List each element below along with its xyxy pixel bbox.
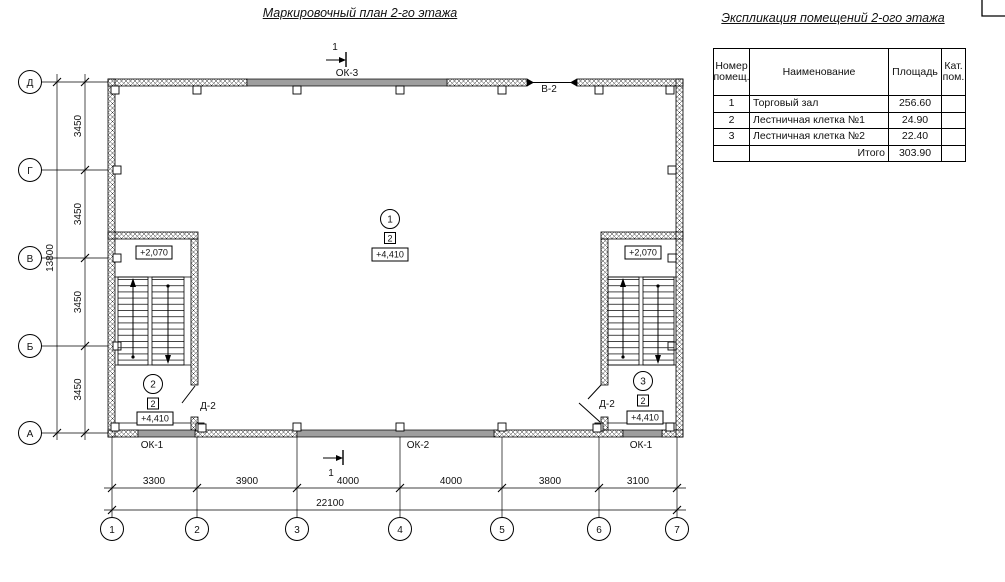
dim-label: 3450 [73,202,84,225]
room-type: 2 [640,396,645,406]
cell-total-empty [714,146,750,162]
cell-room-area: 24.90 [889,113,942,130]
axis-bubble: 2 [194,525,200,536]
room-number: 3 [640,377,646,388]
axis-bubble: В [27,254,34,265]
axis-bubble: А [27,429,34,440]
wall-top-seg3 [577,79,683,86]
axis-bubble: 5 [499,525,505,536]
axis-bubble: Б [27,342,34,353]
stairwell-right-top-wall [601,232,683,239]
elevation-value: +4,410 [141,414,169,424]
cell-room-name: Лестничная клетка №2 [750,129,889,146]
axis-bubble: Г [27,166,33,177]
room-type: 2 [150,399,155,409]
cell-total-area: 303.90 [889,146,942,162]
cell-room-name: Торговый зал [750,96,889,113]
dim-label: 3450 [73,290,84,313]
cell-room-cat [942,113,965,130]
label-v2: В-2 [541,84,557,95]
cell-room-number: 3 [714,129,750,146]
elevation-value: +2,070 [629,248,657,258]
door-leaves [182,385,601,422]
dim-total-label: 22100 [316,498,344,509]
cell-room-number: 2 [714,113,750,130]
section-number: 1 [332,42,338,53]
elevation-value: +4,410 [376,250,404,260]
axis-circles-left: Д Г В Б А [19,71,42,445]
door-leaf-right-lower [579,403,600,422]
label-ok3: ОК-3 [336,68,359,79]
window-ok1-right [623,430,662,437]
axis-bubble: Д [27,78,34,89]
door-jamb-right [593,424,601,432]
dim-label: 3450 [73,378,84,401]
room-number: 1 [387,215,393,226]
window-ok1-left [138,430,195,437]
label-d2-left: Д-2 [200,401,216,412]
wall-top-seg2 [447,79,527,86]
col-header-area: Площадь [889,49,942,96]
axis-bubble: 6 [596,525,602,536]
room-type: 2 [387,234,392,244]
dim-label: 3100 [627,476,650,487]
gate-marker-left [527,79,534,87]
cell-room-area: 22.40 [889,129,942,146]
door-leaf-right-upper [588,385,601,399]
dim-label: 3300 [143,476,166,487]
window-ok2 [297,430,494,437]
window-ok3 [247,79,447,86]
door-leaf-left [182,386,195,403]
cell-room-name: Лестничная клетка №1 [750,113,889,130]
drawing-sheet: ОК-3 В-2 ОК-1 ОК-2 ОК-1 Д-2 Д-2 1 1 1 [0,0,1005,582]
wall-bottom-seg3 [494,430,623,437]
plan-title: Маркировочный план 2-го этажа [215,6,505,20]
dim-label: 3450 [73,114,84,137]
cell-total-label: Итого [750,146,889,162]
label-d2-right: Д-2 [599,399,615,410]
dimension-ticks [108,484,681,514]
dimension-labels-left: 3450 3450 3450 3450 13800 [45,114,84,400]
wall-top-seg1 [108,79,247,86]
dim-label: 3800 [539,476,562,487]
cell-room-cat [942,96,965,113]
section-mark-top: 1 [326,42,346,67]
frame-corner [982,0,1005,16]
col-header-name: Наименование [750,49,889,96]
room-number: 2 [150,380,156,391]
axis-bubble: 4 [397,525,403,536]
wall-bottom-seg2 [195,430,297,437]
axis-circles-bottom: 1 2 3 4 5 6 7 [101,518,689,541]
explication-title: Экспликация помещений 2-ого этажа [700,11,966,25]
axis-bubble: 3 [294,525,300,536]
section-arrow [336,455,343,461]
gate-marker-right [570,79,577,87]
cell-room-number: 1 [714,96,750,113]
dim-label: 3900 [236,476,259,487]
dimensions-bottom [104,437,686,517]
dimension-labels-bottom: 3300 3900 4000 4000 3800 3100 22100 [143,476,650,509]
section-mark-bottom: 1 [323,450,343,479]
stairwell-right-inner-wall [601,239,608,385]
room-marks: 1 2 +4,410 +2,070 2 2 +4,410 +2,070 3 2 … [136,210,663,426]
cell-room-area: 256.60 [889,96,942,113]
stairwell-left-inner-wall [191,239,198,385]
axis-bubble: 7 [674,525,680,536]
wall-right [676,79,683,437]
dim-total-label: 13800 [45,244,56,272]
dim-label: 4000 [337,476,360,487]
explication-table: Номер помещ. Наименование Площадь Кат. п… [713,48,966,162]
label-ok1-right: ОК-1 [630,440,653,451]
cell-total-cat [942,146,965,162]
section-arrow [339,57,346,63]
stairwell-left-top-wall [108,232,198,239]
door-jamb-left [198,424,206,432]
dim-label: 4000 [440,476,463,487]
label-ok2: ОК-2 [407,440,430,451]
label-ok1-left: ОК-1 [141,440,164,451]
col-header-number: Номер помещ. [714,49,750,96]
section-number: 1 [328,468,334,479]
elevation-value: +2,070 [140,248,168,258]
cell-room-cat [942,129,965,146]
col-header-cat: Кат. пом. [942,49,965,96]
axis-bubble: 1 [109,525,115,536]
elevation-value: +4,410 [631,413,659,423]
